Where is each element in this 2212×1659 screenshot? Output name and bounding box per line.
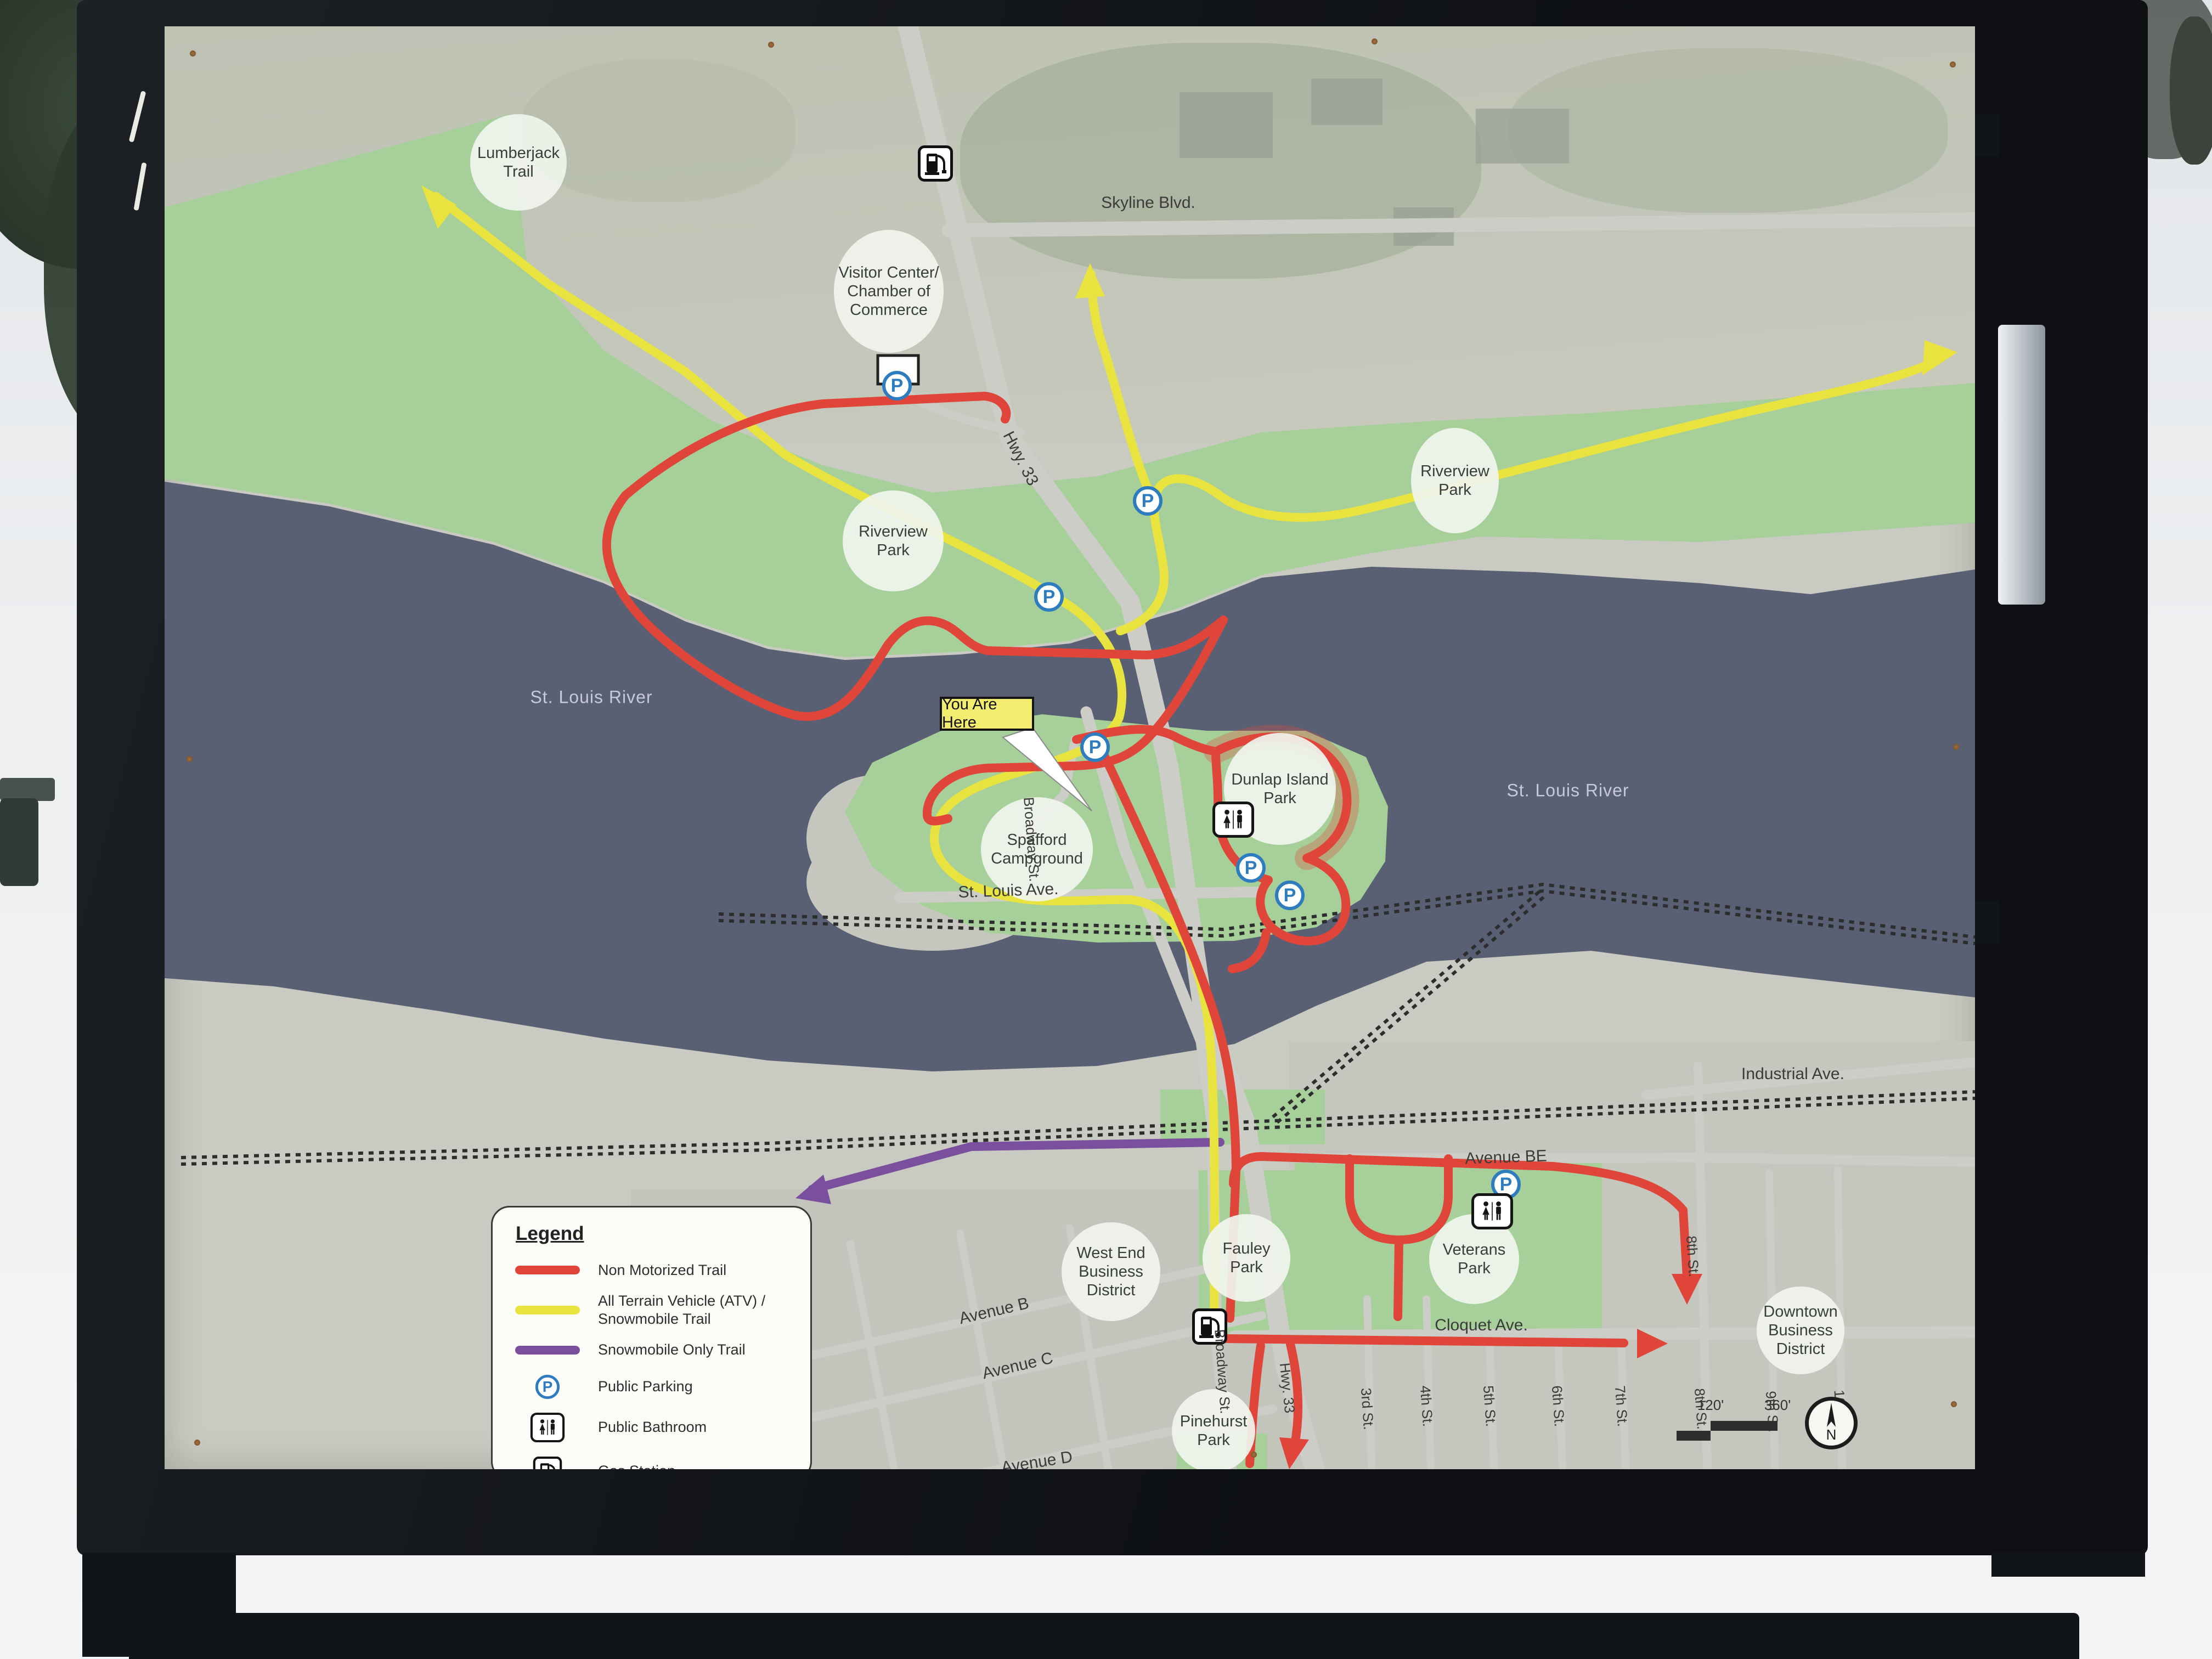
legend-item-label: Public Parking [598, 1378, 693, 1396]
road-label-6th-st-: 6th St. [1548, 1385, 1568, 1427]
metal-bracket [1998, 325, 2045, 605]
map-labels-layer: Skyline Blvd.Hwy. 33Hwy. 33Broadway St.B… [165, 26, 1975, 1469]
legend-item-label: All Terrain Vehicle (ATV) / Snowmobile T… [598, 1292, 792, 1328]
legend-swatch-cell [511, 1346, 584, 1355]
compass-rose: N [1805, 1397, 1858, 1449]
road-label-skyline-blvd-: Skyline Blvd. [1101, 194, 1195, 212]
legend-swatch-cell [511, 1306, 584, 1314]
legend-item-gas-station: Gas Station [511, 1453, 792, 1469]
picnic-table [0, 778, 55, 801]
screw [194, 1440, 200, 1446]
road-label-avenue-d: Avenue D [1000, 1448, 1074, 1469]
screw [1953, 744, 1959, 750]
sign-right-post [1991, 1553, 2145, 1577]
photo-of-trail-map-sign: Lumberjack TrailVisitor Center/ Chamber … [0, 0, 2212, 1659]
screw [1950, 61, 1956, 67]
screw [187, 756, 193, 762]
legend-item-all-terrain-vehicle-atv-snowmobile-trail: All Terrain Vehicle (ATV) / Snowmobile T… [511, 1292, 792, 1328]
road-label-4th-st-: 4th St. [1417, 1385, 1436, 1427]
road-label-8th-st-: 8th St. [1683, 1235, 1702, 1277]
you-are-here-label: You Are Here [942, 696, 1032, 732]
legend-item-label: Public Bathroom [598, 1418, 707, 1436]
scale-label-120: 120' [1680, 1397, 1741, 1414]
road-label-industrial-ave-: Industrial Ave. [1741, 1065, 1844, 1084]
legend-swatch-cell: P [511, 1372, 584, 1402]
legend-title: Legend [516, 1223, 792, 1245]
road-label-avenue-b: Avenue B [957, 1294, 1031, 1328]
road-label-st-louis-ave-: St. Louis Ave. [958, 880, 1059, 902]
screw [1251, 1452, 1257, 1458]
road-label-5th-st-: 5th St. [1480, 1385, 1499, 1427]
legend-item-label: Non Motorized Trail [598, 1261, 726, 1279]
parking-icon: P [535, 1375, 560, 1399]
road-label-hwy-33: Hwy. 33 [999, 428, 1042, 489]
legend-item-public-parking: PPublic Parking [511, 1372, 792, 1402]
bathroom-icon [531, 1413, 565, 1442]
screw [190, 50, 196, 57]
gas-icon [533, 1457, 562, 1469]
road-label-avenue-be: Avenue BE [1465, 1147, 1548, 1168]
you-are-here-box: You Are Here [940, 697, 1034, 731]
trail-map-panel: Lumberjack TrailVisitor Center/ Chamber … [165, 26, 1975, 1469]
road-label-broadway-st-: Broadway St. [1020, 797, 1043, 882]
legend-swatch-cell [511, 1453, 584, 1469]
road-label-cloquet-ave-: Cloquet Ave. [1435, 1316, 1528, 1335]
picnic-table-base [0, 798, 38, 886]
road-label-avenue-c: Avenue C [980, 1349, 1055, 1384]
legend-line-swatch [515, 1266, 580, 1274]
water-label-st-louis-river: St. Louis River [1506, 781, 1629, 801]
legend-line-swatch [515, 1346, 580, 1355]
screw [1372, 38, 1378, 44]
legend-swatch-cell [511, 1266, 584, 1274]
legend-item-label: Snowmobile Only Trail [598, 1341, 746, 1359]
scale-bar-segment [1677, 1431, 1711, 1441]
legend-line-swatch [515, 1306, 580, 1314]
legend-item-label: Gas Station [598, 1462, 675, 1469]
legend-box: Legend Non Motorized TrailAll Terrain Ve… [491, 1206, 812, 1469]
background-tree [2170, 16, 2212, 165]
road-label-3rd-st-: 3rd St. [1357, 1387, 1377, 1431]
scale-bar-segment [1711, 1421, 1778, 1431]
road-label-broadway-st-: Broadway St. [1211, 1329, 1234, 1414]
road-label-7th-st-: 7th St. [1611, 1385, 1631, 1427]
legend-item-public-bathroom: Public Bathroom [511, 1409, 792, 1446]
bracket-arm [1974, 114, 1999, 157]
legend-rows: Non Motorized TrailAll Terrain Vehicle (… [511, 1256, 792, 1469]
water-label-st-louis-river: St. Louis River [530, 687, 652, 708]
bracket-arm [1974, 901, 1999, 944]
scale-label-360: 360' [1747, 1397, 1808, 1414]
sign-bottom-rail [129, 1613, 2079, 1659]
screw [768, 42, 774, 48]
legend-swatch-cell [511, 1409, 584, 1446]
legend-item-snowmobile-only-trail: Snowmobile Only Trail [511, 1336, 792, 1364]
legend-item-non-motorized-trail: Non Motorized Trail [511, 1256, 792, 1284]
screw [1951, 1401, 1957, 1407]
compass-north-label: N [1809, 1426, 1854, 1443]
road-label-hwy-33: Hwy. 33 [1276, 1362, 1298, 1414]
